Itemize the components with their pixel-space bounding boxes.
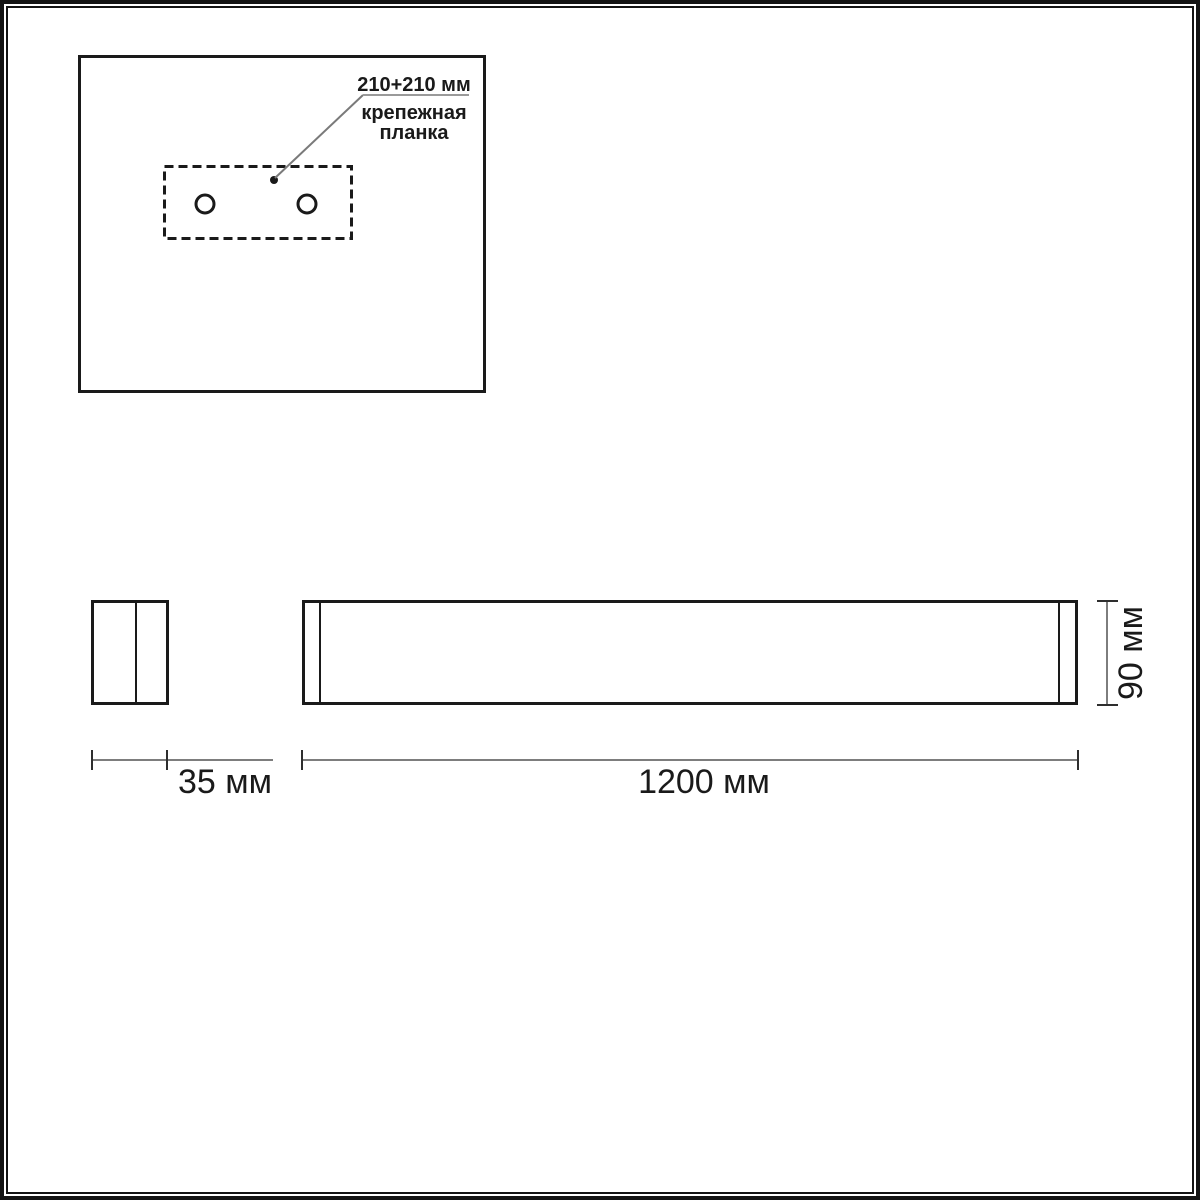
side-view-divider [135,603,137,702]
mounting-hole-left [196,195,214,213]
depth-dimension-label: 35 мм [163,763,287,801]
mounting-plate-label: крепежная планка [355,103,473,143]
front-view-right-divider [1058,603,1060,702]
width-dimension-tick-right [1077,750,1079,770]
width-dimension-label: 1200 мм [614,763,794,801]
fixture-front-view [302,600,1078,705]
height-dimension-line [1106,601,1108,706]
mounting-plate-label-line1: крепежная [355,103,473,123]
depth-dimension-line [92,759,273,761]
width-dimension-line [302,759,1078,761]
mounting-plate-outline [165,167,352,239]
fixture-side-view [91,600,169,705]
depth-dimension-tick-left [91,750,93,770]
width-dimension-tick-left [301,750,303,770]
technical-drawing-page: 210+210 мм крепежная планка 35 мм 1200 м… [0,0,1200,1200]
height-dimension-label: 90 мм [1112,606,1150,700]
mounting-plate-label-line2: планка [355,123,473,143]
height-dimension-tick-top [1097,600,1118,602]
mounting-detail-box: 210+210 мм крепежная планка [78,55,486,393]
mounting-hole-right [298,195,316,213]
front-view-left-divider [319,603,321,702]
mounting-plate-dimension-text: 210+210 мм [355,74,473,96]
height-dimension-tick-bottom [1097,704,1118,706]
